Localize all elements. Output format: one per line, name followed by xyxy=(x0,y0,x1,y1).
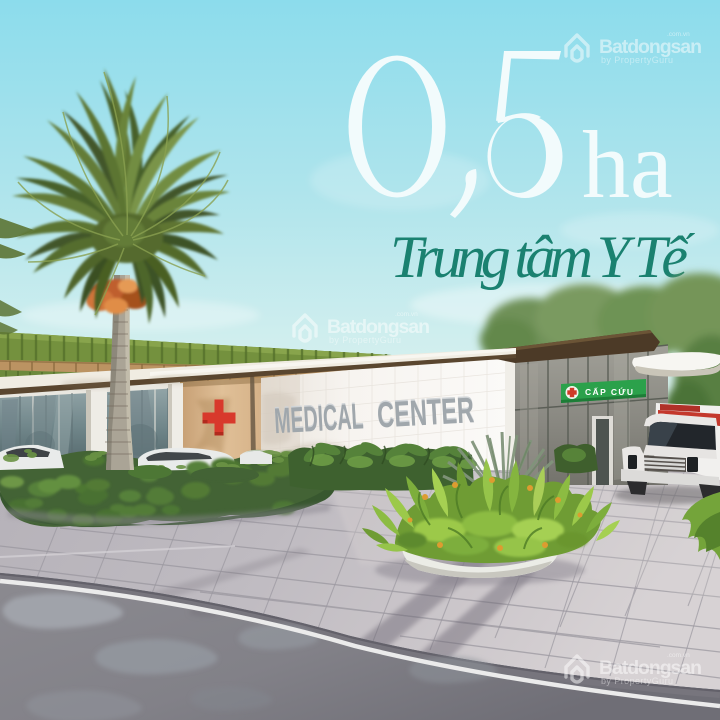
svg-text:.com.vn: .com.vn xyxy=(667,31,690,38)
svg-text:Trung tâm Y Tế: Trung tâm Y Tế xyxy=(390,224,695,290)
svg-text:by PropertyGuru: by PropertyGuru xyxy=(601,55,673,65)
svg-text:MEDICAL: MEDICAL xyxy=(273,395,364,441)
svg-text:ha: ha xyxy=(582,111,673,218)
svg-text:.com.vn: .com.vn xyxy=(667,652,690,659)
svg-text:.com.vn: .com.vn xyxy=(395,311,418,318)
svg-text:CENTER: CENTER xyxy=(376,389,475,435)
svg-text:by PropertyGuru: by PropertyGuru xyxy=(329,335,401,345)
svg-text:by PropertyGuru: by PropertyGuru xyxy=(601,676,673,686)
